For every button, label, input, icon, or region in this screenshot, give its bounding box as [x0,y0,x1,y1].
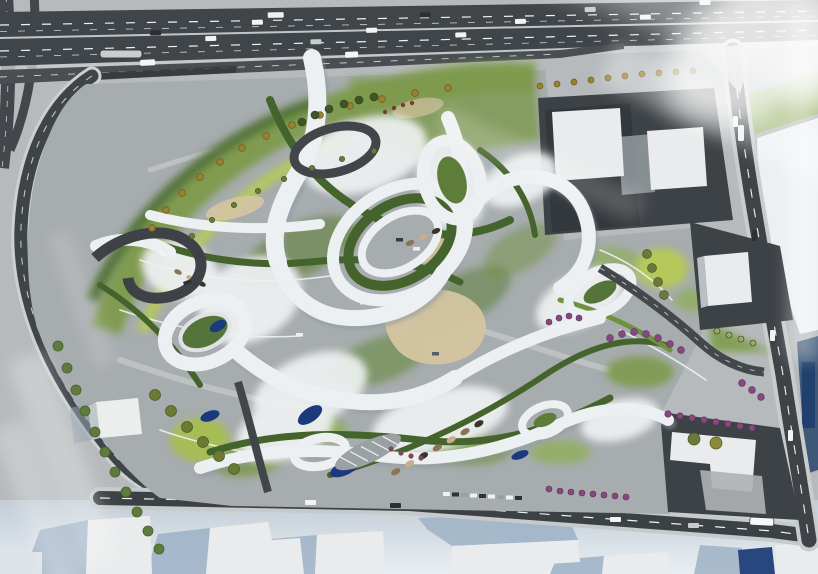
car [296,333,303,337]
tree [737,423,743,429]
parked-car [497,495,504,499]
tree [689,415,695,421]
tree [100,447,110,457]
tree [557,488,563,494]
tree [231,202,236,207]
tree [607,335,614,342]
tree [677,413,683,419]
car [432,352,439,356]
tree [209,217,214,222]
car [688,523,699,528]
car [413,247,420,251]
tree [714,328,720,334]
tree [750,340,756,346]
shrub [383,110,387,114]
plot-driveway [700,470,766,514]
tree [298,118,306,126]
tree [229,464,240,475]
tree [154,544,164,554]
tree [370,93,378,101]
tree [309,165,314,170]
tree [163,207,170,214]
tree [631,329,638,336]
car [150,30,161,35]
tree [150,390,161,401]
right-glass-band [802,362,815,428]
bus [345,51,358,58]
small-white-building [96,398,142,438]
tree [749,387,756,394]
tree [643,331,650,338]
tree [576,315,582,321]
car [770,330,775,341]
tree [355,96,363,104]
tree [678,347,685,354]
tree [189,233,194,238]
parked-car [443,492,450,496]
tree [654,278,663,287]
tree [601,492,607,498]
parked-car [470,494,477,498]
tree [90,427,100,437]
shrub [388,446,393,451]
shrub [401,103,405,107]
tree [643,250,652,259]
tree [197,174,204,181]
car [455,32,466,37]
tree [281,176,286,181]
tree [263,133,270,140]
car [390,503,401,508]
parked-car [506,496,513,500]
tree [311,111,319,119]
tree [217,159,224,166]
tree [62,363,72,373]
tree [340,100,348,108]
car [305,500,316,505]
tree [546,486,552,492]
glass-roof-block [738,547,775,574]
tree [121,487,131,497]
tree [655,335,662,342]
car [310,39,321,44]
tree [80,406,90,416]
shrub [398,450,403,455]
shrub [392,106,396,110]
shrub [408,453,413,458]
bus [140,59,155,66]
masterplan-canvas [0,0,818,574]
car [752,230,757,241]
tree [749,425,755,431]
aerial-render: Aerial rendering of a futuristic master … [0,0,818,574]
tree [371,148,376,153]
tree [198,437,209,448]
tree [588,77,594,83]
tree [132,507,142,517]
car [360,301,367,305]
lawn-patch [606,356,674,388]
tree [412,90,419,97]
tree [739,380,746,387]
tree [612,493,618,499]
tree [179,190,186,197]
tree [537,83,543,89]
white-square-building-2 [647,127,707,190]
tree [619,331,626,338]
tree [701,417,707,423]
tree [566,313,572,319]
tree [239,145,246,152]
tree [725,421,731,427]
tree [53,341,63,351]
tree [665,411,671,417]
tree [182,422,193,433]
tree [571,79,577,85]
tree [325,105,333,113]
tree [445,85,452,92]
shrub [410,101,414,105]
car [396,238,403,242]
parked-car [488,495,495,499]
parked-car [515,496,522,500]
tree [667,341,674,348]
parked-car [461,493,468,497]
tree [379,96,386,103]
tree [688,433,700,445]
tree [758,394,765,401]
tree [579,490,585,496]
bus-layby [100,50,142,58]
city-block [0,552,42,574]
tree [554,81,560,87]
tree [590,491,596,497]
car [515,19,526,24]
tree [623,494,629,500]
tree [71,385,81,395]
tree [710,437,722,449]
tree [110,467,120,477]
city-block [315,531,385,574]
tree [648,264,657,273]
truck [268,12,284,18]
glare-edge [788,0,818,360]
tree [149,225,156,232]
bus [750,517,774,526]
right-plot-building [704,252,752,306]
tree [713,419,719,425]
parked-car [479,494,486,498]
tree [568,489,574,495]
tree [660,291,669,300]
tree [143,526,153,536]
car [788,430,793,441]
car [366,28,377,33]
tree [738,336,744,342]
car [610,517,621,522]
shrub [418,455,423,460]
tree [546,319,552,325]
car [420,12,431,17]
tree [556,315,562,321]
parked-car [452,493,459,497]
car [585,7,596,12]
car [252,20,263,25]
tree [289,122,296,129]
tree [255,188,260,193]
tree [214,451,225,462]
building-shadow [694,545,742,574]
car [205,36,216,41]
tree [166,406,177,417]
tree [339,156,344,161]
tree [726,332,732,338]
